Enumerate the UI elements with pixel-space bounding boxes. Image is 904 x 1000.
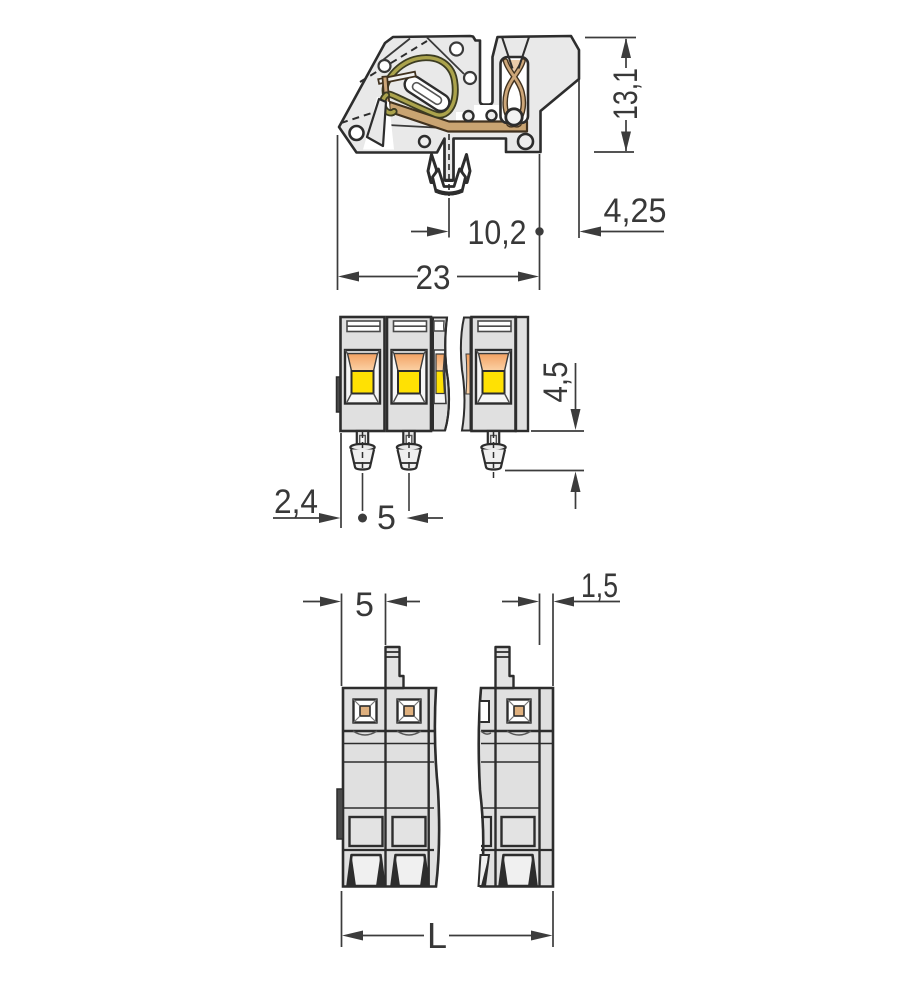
svg-text:10,2: 10,2 bbox=[468, 214, 527, 252]
svg-text:5: 5 bbox=[377, 499, 396, 537]
svg-text:13,1: 13,1 bbox=[607, 68, 645, 120]
svg-text:L: L bbox=[427, 915, 447, 956]
svg-text:1,5: 1,5 bbox=[581, 567, 618, 605]
svg-text:2,4: 2,4 bbox=[274, 483, 318, 521]
svg-text:4,25: 4,25 bbox=[604, 192, 667, 230]
svg-text:4,5: 4,5 bbox=[537, 362, 575, 403]
svg-text:5: 5 bbox=[355, 586, 374, 624]
svg-text:23: 23 bbox=[416, 259, 451, 297]
